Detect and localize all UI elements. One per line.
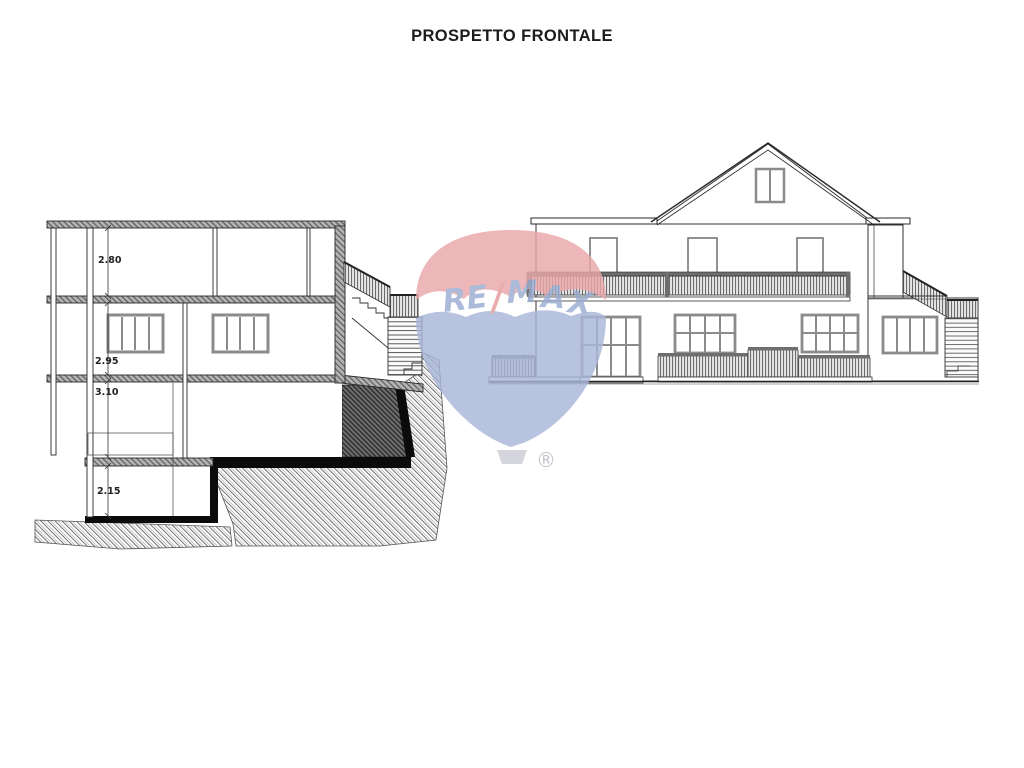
watermark-text-re: RE — [441, 279, 490, 320]
gable-window — [756, 169, 784, 202]
window-left — [108, 315, 163, 352]
window-center — [675, 315, 735, 353]
watermark-text-m: M — [506, 274, 538, 311]
window-right — [802, 315, 858, 352]
dim-label-3-10: 3.10 — [95, 387, 118, 398]
chimney-block — [868, 225, 903, 298]
dim-label-2-80: 2.80 — [98, 255, 121, 266]
drawing-sheet: PROSPETTO FRONTALE — [0, 0, 1024, 768]
watermark-text-a: A — [538, 279, 567, 316]
balloon-bottom-blue — [416, 310, 606, 447]
remax-balloon: RE / M A X ® — [398, 218, 634, 484]
window-right — [213, 315, 268, 352]
dim-label-2-15: 2.15 — [97, 486, 120, 497]
section-drawing-svg — [30, 135, 460, 560]
dim-label-2-95: 2.95 — [95, 356, 118, 367]
registered-symbol: ® — [536, 448, 556, 472]
window-annex — [883, 317, 937, 353]
ground-hatch-left — [35, 520, 232, 549]
balloon-basket — [497, 450, 527, 464]
remax-watermark: RE / M A X ® — [398, 218, 634, 484]
page-title: PROSPETTO FRONTALE — [0, 27, 1024, 46]
section-drawing — [30, 135, 460, 560]
